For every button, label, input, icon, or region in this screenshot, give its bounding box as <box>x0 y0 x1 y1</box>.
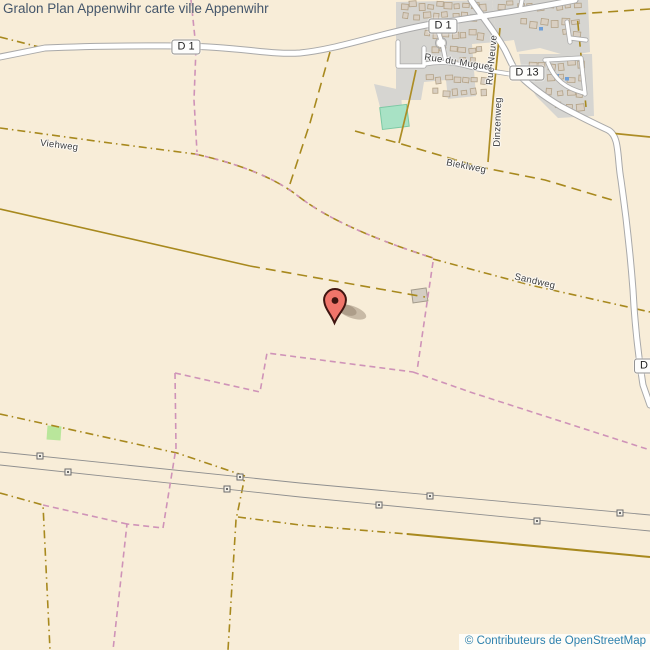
building <box>409 1 417 7</box>
road-badge-d1-village: D 1 <box>428 19 457 34</box>
map-canvas[interactable]: Gralon Plan Appenwihr carte ville Appenw… <box>0 0 650 650</box>
building <box>551 20 558 27</box>
location-pin[interactable] <box>324 289 346 323</box>
building <box>521 18 527 24</box>
building <box>541 18 549 25</box>
building <box>481 89 487 96</box>
track-solid-southeast <box>407 534 650 557</box>
grass-patch <box>47 426 62 441</box>
building <box>403 12 409 18</box>
building <box>433 88 438 93</box>
building <box>452 89 458 96</box>
building <box>477 33 484 41</box>
map-graphics <box>0 0 650 650</box>
track-curved <box>195 154 433 258</box>
building <box>507 1 513 5</box>
building <box>576 104 584 112</box>
building <box>444 2 452 9</box>
road-badge-d13: D 13 <box>509 66 544 81</box>
attribution-link[interactable]: © Contributeurs de OpenStreetMap <box>459 634 650 650</box>
building <box>470 88 476 95</box>
track-viehweg <box>0 128 195 154</box>
power-line <box>0 452 650 531</box>
building <box>574 3 581 8</box>
building <box>419 3 425 10</box>
track-solid-northwest <box>0 209 250 266</box>
building <box>426 74 434 79</box>
building <box>450 46 457 51</box>
building <box>401 4 408 10</box>
building <box>441 12 447 18</box>
building <box>469 29 476 35</box>
building <box>443 91 450 97</box>
road-badge-d13-clipped: D 13 <box>634 359 650 374</box>
building <box>458 47 466 52</box>
road-fills <box>0 0 650 405</box>
building <box>461 90 467 95</box>
building <box>529 21 537 28</box>
building <box>476 46 481 51</box>
building <box>414 15 420 20</box>
building <box>498 4 505 9</box>
building <box>463 3 470 7</box>
road-badge-d1-west: D 1 <box>171 40 200 55</box>
street-label-dinzenweg: Dinzenweg <box>492 97 505 147</box>
building <box>462 77 469 83</box>
building <box>446 75 453 80</box>
building <box>454 4 460 9</box>
building <box>454 77 461 83</box>
building <box>435 77 441 84</box>
building <box>437 1 444 6</box>
building <box>471 78 477 82</box>
track-dashdot-southwest <box>0 37 407 650</box>
building <box>469 48 476 53</box>
page-title: Gralon Plan Appenwihr carte ville Appenw… <box>3 1 269 16</box>
building <box>558 63 564 70</box>
building <box>557 91 563 96</box>
building <box>423 12 431 18</box>
building <box>460 32 466 38</box>
building <box>428 4 434 9</box>
power-pylons <box>37 453 623 524</box>
